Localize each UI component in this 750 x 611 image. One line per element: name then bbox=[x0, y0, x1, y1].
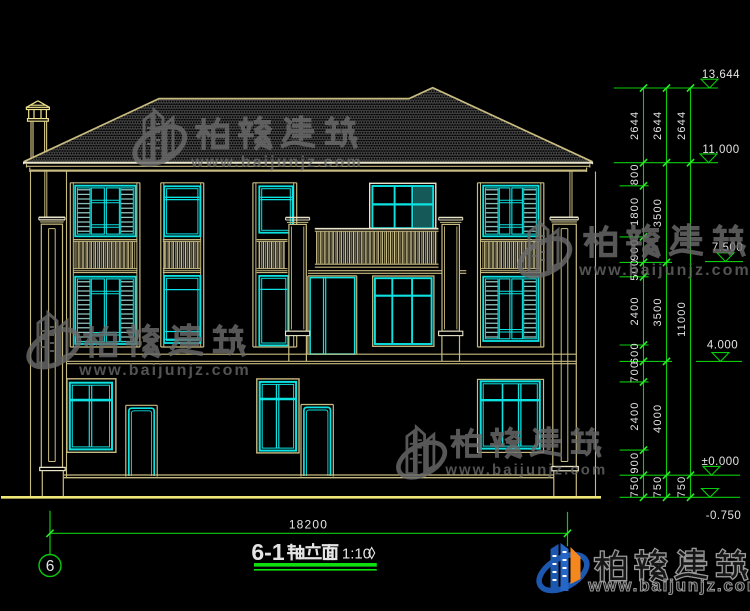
svg-text:-0.750: -0.750 bbox=[706, 510, 742, 522]
svg-text:6: 6 bbox=[46, 558, 55, 575]
svg-text:13.644: 13.644 bbox=[702, 69, 740, 81]
svg-text:18200: 18200 bbox=[289, 518, 328, 532]
svg-text:2644: 2644 bbox=[676, 111, 688, 140]
svg-text:11.000: 11.000 bbox=[702, 144, 739, 156]
svg-text:1800: 1800 bbox=[629, 197, 641, 226]
svg-text:www.baijunjz.com: www.baijunjz.com bbox=[190, 154, 363, 171]
svg-text:11000: 11000 bbox=[676, 301, 688, 337]
svg-text:750: 750 bbox=[676, 476, 688, 498]
svg-text:6-1: 6-1 bbox=[251, 539, 284, 565]
svg-text:3500: 3500 bbox=[652, 198, 664, 227]
svg-text:2400: 2400 bbox=[629, 401, 641, 430]
svg-text:www.baijunjz.com: www.baijunjz.com bbox=[578, 262, 750, 279]
svg-text:±0.000: ±0.000 bbox=[701, 456, 739, 468]
svg-text:4000: 4000 bbox=[652, 404, 664, 433]
svg-text:800: 800 bbox=[629, 163, 641, 185]
svg-text:www.baijunjz.com: www.baijunjz.com bbox=[78, 362, 251, 379]
svg-text:www.baijunjz.com: www.baijunjz.com bbox=[587, 576, 750, 595]
svg-text:4.000: 4.000 bbox=[707, 340, 738, 352]
svg-text:www.baijunjz.com: www.baijunjz.com bbox=[444, 462, 607, 478]
svg-text:750: 750 bbox=[629, 476, 641, 498]
svg-text:3500: 3500 bbox=[652, 297, 664, 326]
svg-text:750: 750 bbox=[652, 476, 664, 498]
svg-text:2644: 2644 bbox=[652, 111, 664, 140]
svg-text:2400: 2400 bbox=[629, 296, 641, 325]
svg-text:700: 700 bbox=[629, 361, 641, 383]
svg-text:900: 900 bbox=[629, 452, 641, 474]
svg-text:2644: 2644 bbox=[629, 111, 641, 140]
svg-text:1:10: 1:10 bbox=[342, 546, 371, 563]
